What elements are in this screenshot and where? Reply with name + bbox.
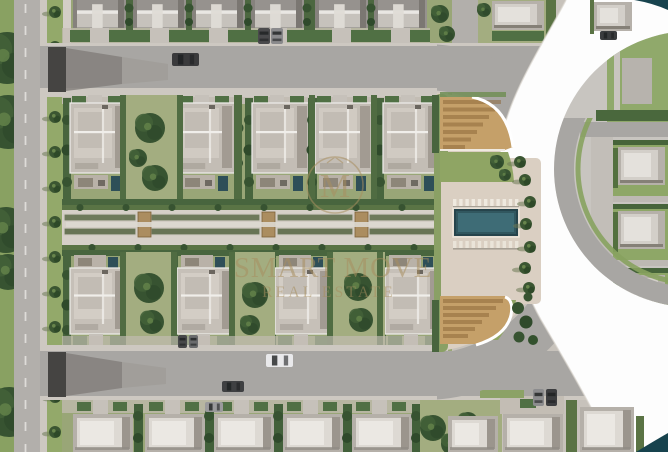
svg-text:SMART MOVE: SMART MOVE (234, 252, 432, 284)
svg-text:REAL ESTATE: REAL ESTATE (262, 284, 396, 301)
svg-text:M: M (320, 168, 350, 205)
